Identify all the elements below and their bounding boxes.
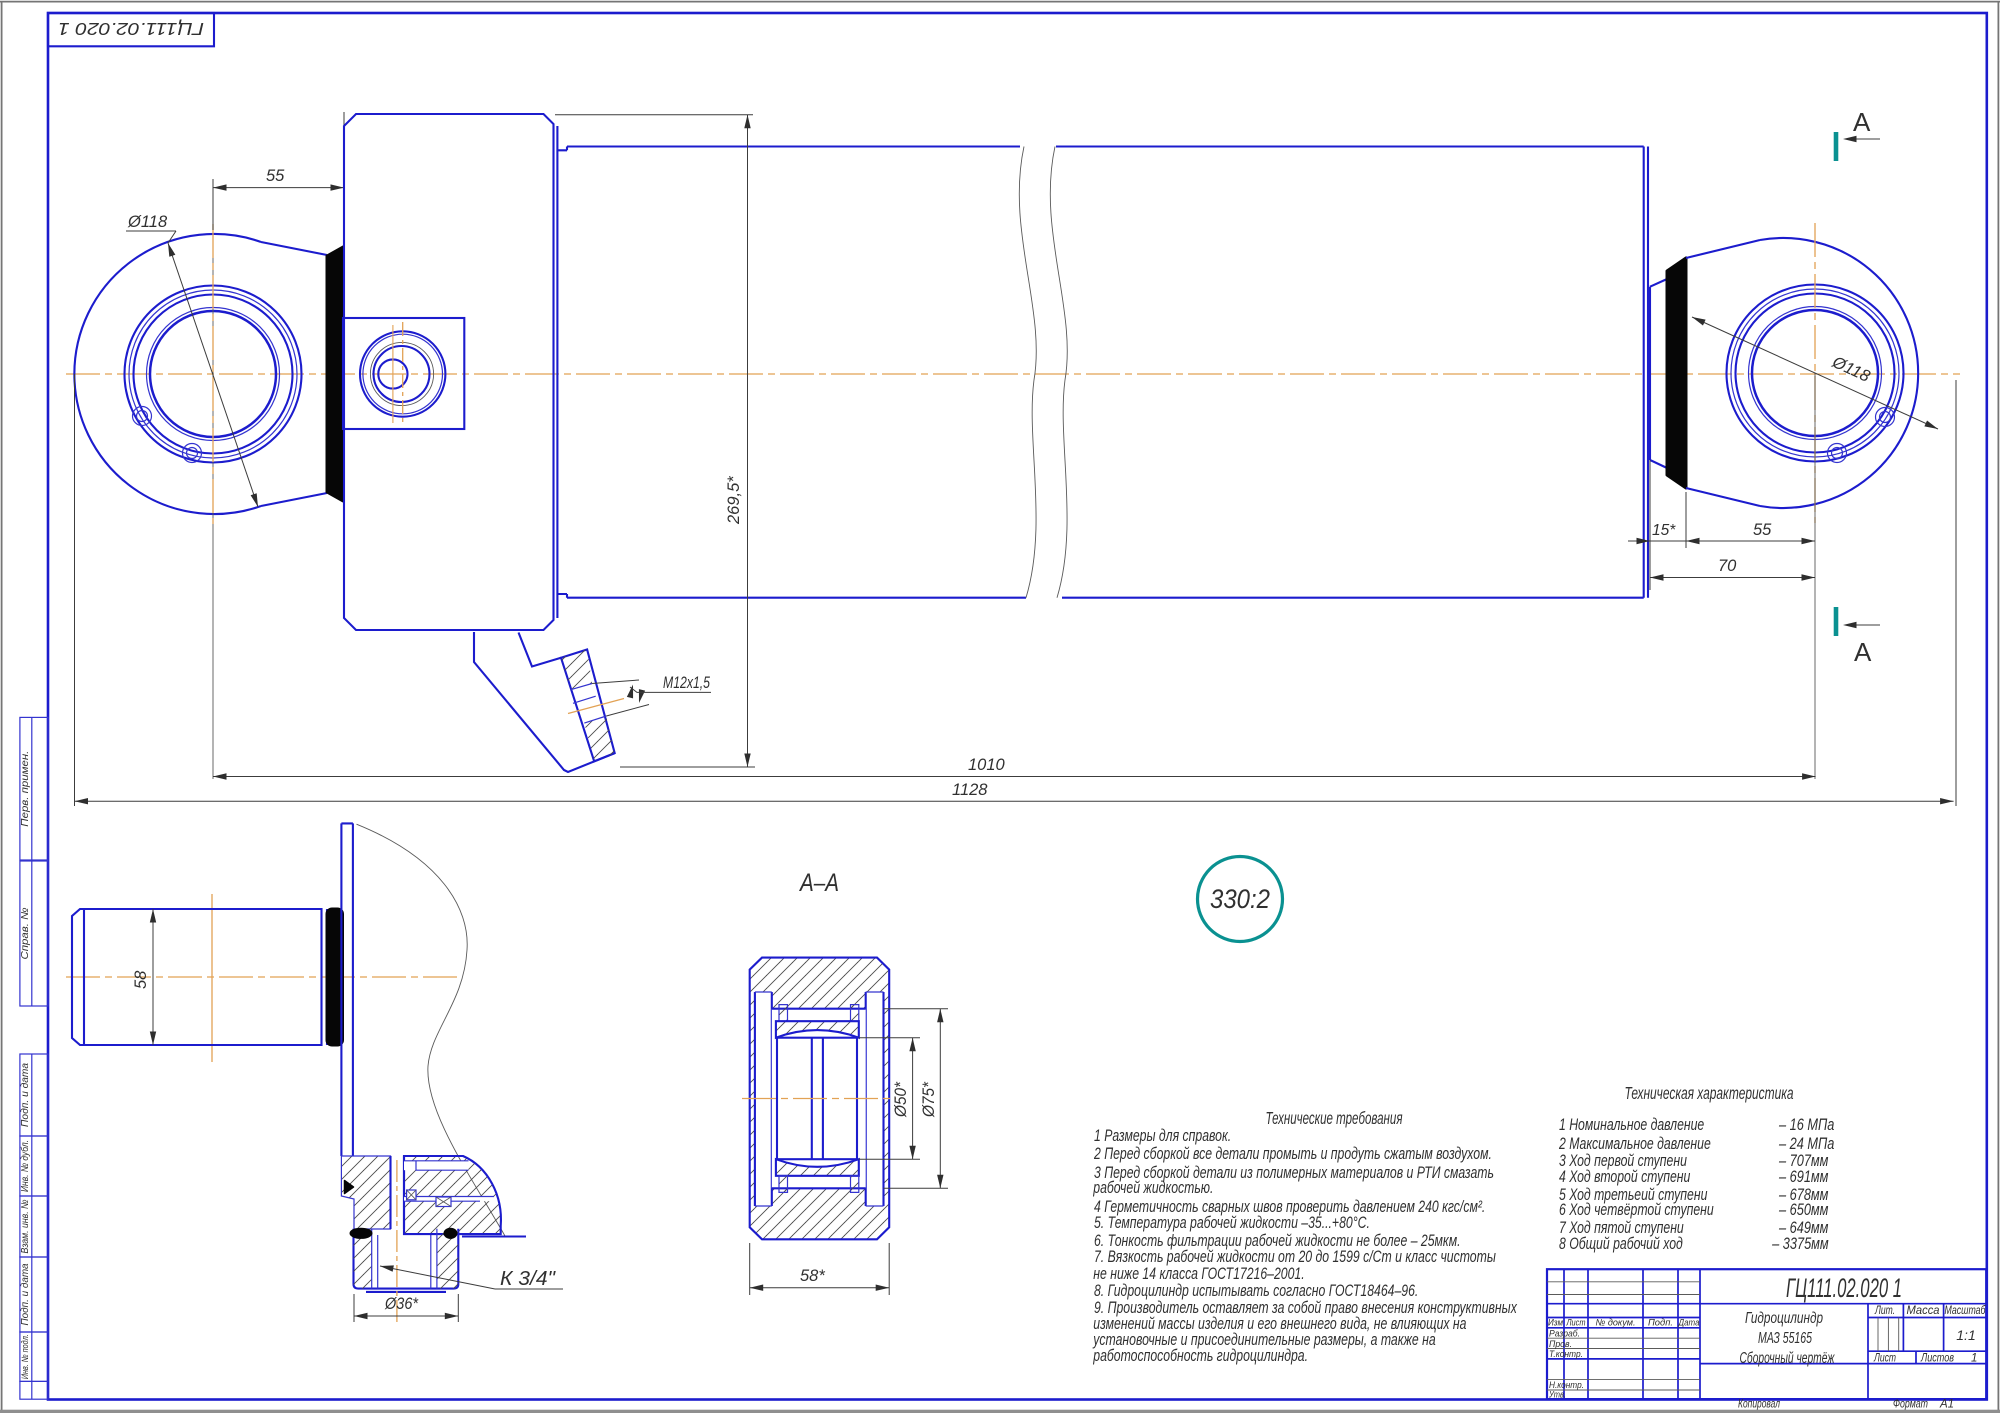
- svg-text:1128: 1128: [952, 781, 988, 799]
- svg-text:А1: А1: [1939, 1399, 1954, 1411]
- svg-text:Инв. № дубл.: Инв. № дубл.: [19, 1140, 31, 1192]
- svg-text:– 650мм: – 650мм: [1778, 1200, 1828, 1219]
- svg-text:7. Вязкость рабочей жидкости: 7. Вязкость рабочей жидкости от 20 до 15…: [1094, 1248, 1496, 1266]
- svg-text:Инв. № подл.: Инв. № подл.: [20, 1334, 30, 1379]
- svg-text:Ø36*: Ø36*: [384, 1295, 418, 1313]
- svg-text:А: А: [1854, 637, 1872, 667]
- svg-text:58*: 58*: [800, 1267, 825, 1285]
- svg-text:Лист: Лист: [1873, 1352, 1896, 1364]
- svg-text:5. Температура рабочей жидкост: 5. Температура рабочей жидкости –35...+8…: [1094, 1214, 1370, 1232]
- svg-text:2 Перед сборкой все детали про: 2 Перед сборкой все детали промыть и про…: [1093, 1145, 1492, 1163]
- svg-text:1 Номинальное давление: 1 Номинальное давление: [1559, 1116, 1704, 1134]
- svg-text:Масса: Масса: [1907, 1305, 1940, 1317]
- svg-text:4 Ход второй ступени: 4 Ход второй ступени: [1559, 1168, 1690, 1186]
- svg-text:Пров.: Пров.: [1549, 1339, 1572, 1349]
- svg-text:Техническая характеристика: Техническая характеристика: [1625, 1083, 1794, 1103]
- svg-text:Утв.: Утв.: [1548, 1390, 1566, 1400]
- svg-text:1: 1: [1971, 1352, 1977, 1364]
- svg-text:Н.контр.: Н.контр.: [1549, 1380, 1584, 1390]
- svg-text:55: 55: [1753, 521, 1772, 539]
- svg-text:70: 70: [1718, 557, 1737, 575]
- svg-text:Подп. и дата: Подп. и дата: [20, 1063, 31, 1127]
- svg-text:Ø118: Ø118: [127, 213, 168, 231]
- svg-text:Сборочный чертёж: Сборочный чертёж: [1740, 1350, 1836, 1367]
- svg-text:8 Общий рабочий ход: 8 Общий рабочий ход: [1559, 1235, 1683, 1253]
- svg-text:ГЦ111.02.020 1: ГЦ111.02.020 1: [1786, 1273, 1902, 1303]
- svg-text:А: А: [1853, 107, 1871, 137]
- svg-text:15*: 15*: [1652, 522, 1676, 539]
- svg-text:№ докум.: № докум.: [1596, 1317, 1636, 1327]
- svg-text:Взам. инв. №: Взам. инв. №: [20, 1199, 31, 1253]
- svg-text:Ø75*: Ø75*: [920, 1081, 938, 1117]
- svg-text:А–А: А–А: [798, 869, 839, 897]
- svg-text:Разраб.: Разраб.: [1549, 1329, 1580, 1339]
- svg-text:1:1: 1:1: [1956, 1327, 1975, 1343]
- svg-text:– 16 МПа: – 16 МПа: [1778, 1115, 1834, 1134]
- svg-text:Перв. примен.: Перв. примен.: [20, 751, 31, 827]
- svg-text:ГЦ111.02.020 1: ГЦ111.02.020 1: [58, 19, 204, 39]
- svg-text:– 691мм: – 691мм: [1778, 1167, 1828, 1186]
- svg-text:Ø50*: Ø50*: [892, 1081, 910, 1117]
- svg-text:М12х1,5: М12х1,5: [663, 674, 711, 692]
- svg-text:Справ. №: Справ. №: [20, 907, 31, 959]
- svg-text:Формат: Формат: [1893, 1399, 1928, 1411]
- svg-text:МАЗ 55165: МАЗ 55165: [1758, 1330, 1812, 1347]
- svg-text:рабочей жидкостью.: рабочей жидкостью.: [1092, 1179, 1213, 1197]
- svg-text:58: 58: [132, 970, 150, 989]
- svg-text:55: 55: [266, 167, 285, 185]
- svg-text:Листов: Листов: [1920, 1352, 1954, 1364]
- svg-text:Гидроцилиндр: Гидроцилиндр: [1745, 1310, 1823, 1327]
- svg-text:Т.контр.: Т.контр.: [1549, 1349, 1583, 1359]
- svg-text:не ниже 14 класса ГОСТ17216–20: не ниже 14 класса ГОСТ17216–2001.: [1093, 1265, 1304, 1283]
- svg-text:269,5*: 269,5*: [725, 476, 743, 525]
- svg-text:Изм: Изм: [1548, 1317, 1564, 1327]
- svg-text:Дата: Дата: [1678, 1317, 1700, 1327]
- svg-text:Масштаб: Масштаб: [1945, 1305, 1986, 1317]
- svg-text:8. Гидроцилиндр испытывать сог: 8. Гидроцилиндр испытывать согласно ГОСТ…: [1094, 1282, 1418, 1300]
- svg-text:Копировал: Копировал: [1738, 1399, 1780, 1411]
- svg-text:Подп. и дата: Подп. и дата: [20, 1263, 31, 1325]
- svg-text:Лит.: Лит.: [1874, 1305, 1895, 1317]
- svg-text:Лист: Лист: [1566, 1317, 1586, 1327]
- svg-text:2 Максимальное давление: 2 Максимальное давление: [1558, 1135, 1711, 1153]
- svg-text:Подп.: Подп.: [1648, 1317, 1673, 1327]
- svg-text:1 Размеры для справок.: 1 Размеры для справок.: [1094, 1127, 1231, 1145]
- svg-text:– 3375мм: – 3375мм: [1771, 1234, 1828, 1253]
- svg-text:1010: 1010: [968, 756, 1006, 774]
- svg-text:К 3/4": К 3/4": [500, 1268, 556, 1290]
- svg-text:6 Ход четвёртой ступени: 6 Ход четвёртой ступени: [1559, 1201, 1714, 1219]
- svg-text:330:2: 330:2: [1210, 884, 1270, 914]
- svg-text:работоспособность гидроцилиндр: работоспособность гидроцилиндра.: [1092, 1347, 1308, 1365]
- svg-text:Технические требования: Технические требования: [1266, 1108, 1403, 1128]
